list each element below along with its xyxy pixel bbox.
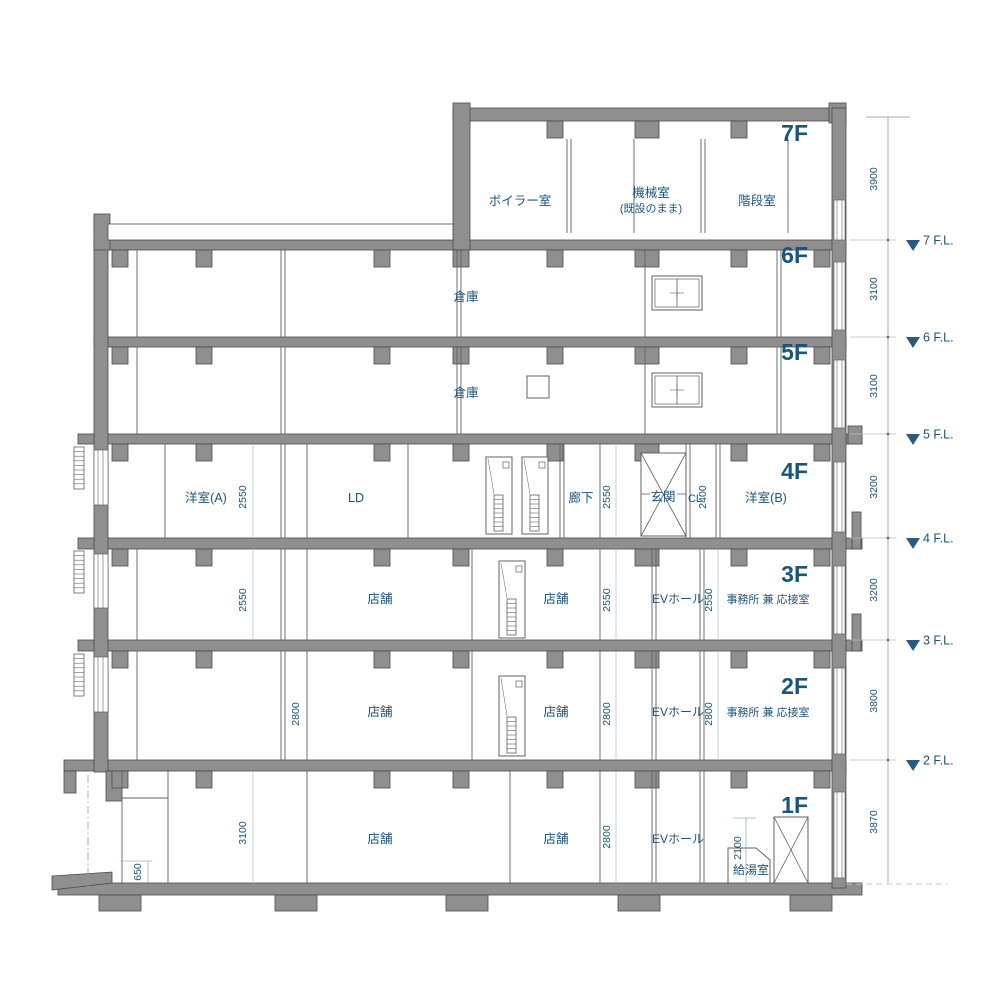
beam-stub [374, 549, 390, 566]
room-label: 機械室 [632, 185, 670, 200]
beam-stub [374, 771, 390, 788]
elevator-door-detail [516, 566, 522, 572]
room-label: 洋室(B) [745, 490, 787, 505]
roof-strip [108, 224, 453, 240]
beam-stub [196, 347, 212, 364]
elevator-door-detail [503, 462, 509, 468]
dim-node [887, 759, 890, 762]
right-dimension-value: 3900 [868, 167, 880, 191]
beam-stub [731, 771, 747, 788]
dim-node [887, 239, 890, 242]
interior-dimension-value: 2800 [703, 702, 715, 726]
interior-dimension-value: 3100 [237, 821, 249, 845]
room-label: 給湯室 [733, 862, 769, 877]
beam-stub [635, 121, 659, 138]
floor-slab [78, 640, 862, 651]
beam-stub [196, 549, 212, 566]
fl-triangle-icon [906, 240, 920, 251]
floor-level-label: 5 F.L. [923, 428, 954, 442]
beam-stub [814, 250, 830, 267]
wall [852, 512, 861, 549]
beam-stub [731, 250, 747, 267]
window-slot [834, 668, 845, 754]
window-slot [834, 360, 845, 428]
railing-hatch [74, 551, 84, 593]
beam-stub [374, 444, 390, 461]
wall [848, 426, 862, 444]
interior-dimension-value: 650 [132, 863, 144, 881]
floor-number-label: 6F [781, 242, 808, 268]
beam-stub [453, 444, 469, 461]
beam-stub [814, 549, 830, 566]
elevator-door-detail [539, 462, 545, 468]
room-label: (既設のまま) [620, 201, 682, 215]
footing [99, 895, 141, 911]
beam-stub [731, 444, 747, 461]
room-label: 事務所 兼 応接室 [726, 592, 809, 606]
room-label: 店舗 [543, 832, 568, 846]
room-label: CL [688, 493, 702, 505]
right-dimension-value: 3870 [868, 810, 880, 834]
room-label: 倉庫 [453, 289, 478, 304]
beam-stub [731, 549, 747, 566]
wall [453, 103, 470, 250]
fl-triangle-icon [906, 538, 920, 549]
beam-stub [635, 250, 659, 267]
floor-level-label: 4 F.L. [923, 532, 954, 546]
floor-level-label: 7 F.L. [923, 234, 954, 248]
beam-stub [453, 549, 469, 566]
beam-stub [547, 347, 563, 364]
floor-number-label: 4F [781, 458, 808, 484]
beam-stub [374, 250, 390, 267]
room-label: 店舗 [543, 705, 568, 719]
window-slot [94, 554, 108, 608]
dim-node [887, 639, 890, 642]
beam-stub [814, 651, 830, 668]
beam-stub [453, 771, 469, 788]
beam-stub [547, 549, 563, 566]
elevator-door-detail [516, 681, 522, 687]
room-label: EVホール [652, 592, 704, 606]
railing-hatch [74, 654, 84, 696]
room-label: 廊下 [568, 490, 593, 505]
building-section-drawing: 7 F.L.6 F.L.5 F.L.4 F.L.3 F.L.2 F.L.3900… [0, 0, 1000, 1000]
beam-stub [731, 347, 747, 364]
floor-slab [64, 760, 846, 771]
room-label: ボイラー室 [489, 193, 552, 208]
interior-dimension-value: 2800 [290, 702, 302, 726]
right-dimension-value: 3200 [868, 475, 880, 499]
floor-level-label: 2 F.L. [923, 754, 954, 768]
floor-number-label: 5F [781, 339, 808, 365]
room-label: 玄関 [650, 489, 675, 504]
room-label: 洋室(A) [185, 490, 227, 505]
concrete-structure [52, 103, 862, 911]
interior-dimension-value: 2100 [732, 836, 744, 860]
dim-node [887, 336, 890, 339]
dim-node [887, 537, 890, 540]
room-label: 階段室 [738, 193, 776, 208]
beam-stub [112, 549, 128, 566]
floor-level-label: 3 F.L. [923, 634, 954, 648]
right-dimension-value: 3100 [868, 277, 880, 301]
beam-stub [547, 771, 563, 788]
beam-stub [453, 651, 469, 668]
beam-stub [196, 651, 212, 668]
window-slot [834, 566, 845, 634]
floor-slab [94, 337, 846, 347]
right-dimension-value: 3800 [868, 689, 880, 713]
beam-stub [112, 444, 128, 461]
beam-stub [112, 250, 128, 267]
room-label: 店舗 [367, 705, 392, 719]
interior-dimension-value: 2550 [237, 485, 249, 509]
beam-stub [112, 771, 128, 788]
window-slot [834, 200, 845, 240]
footing [790, 895, 832, 911]
interior-dimension-value: 2800 [601, 825, 613, 849]
dim-node [887, 433, 890, 436]
beam-stub [112, 347, 128, 364]
floor-slab [78, 538, 862, 549]
small-window [527, 376, 549, 398]
beam-stub [814, 444, 830, 461]
floor-slab [78, 434, 862, 444]
beam-stub [635, 549, 659, 566]
room-label: 店舗 [367, 592, 392, 606]
floor-number-label: 7F [781, 120, 808, 146]
beam-stub [731, 651, 747, 668]
wall [852, 614, 861, 651]
beam-stub [547, 444, 563, 461]
beam-stub [547, 121, 563, 138]
right-dimension-value: 3100 [868, 374, 880, 398]
fl-triangle-icon [906, 640, 920, 651]
window-slot [94, 450, 108, 505]
interior-dimension-value: 2550 [703, 588, 715, 612]
railing-hatch [74, 447, 84, 489]
floor-level-label: 6 F.L. [923, 331, 954, 345]
wall [64, 771, 76, 793]
footing [618, 895, 660, 911]
footing [446, 895, 488, 911]
fl-triangle-icon [906, 760, 920, 771]
beam-stub [112, 651, 128, 668]
beam-stub [547, 651, 563, 668]
beam-stub [196, 771, 212, 788]
room-label: 店舗 [367, 832, 392, 846]
beam-stub [374, 347, 390, 364]
floor-slab [58, 883, 862, 895]
beam-stub [635, 347, 659, 364]
window-slot [834, 262, 845, 330]
window-slot [834, 792, 845, 878]
room-label: 倉庫 [453, 385, 478, 400]
window-slot [834, 462, 845, 532]
beam-stub [814, 347, 830, 364]
floor-number-label: 1F [781, 792, 808, 818]
section-svg: 7 F.L.6 F.L.5 F.L.4 F.L.3 F.L.2 F.L.3900… [0, 0, 1000, 1000]
beam-stub [635, 651, 659, 668]
right-dimension-value: 3200 [868, 578, 880, 602]
floor-number-label: 2F [781, 673, 808, 699]
fl-triangle-icon [906, 337, 920, 348]
beam-stub [374, 651, 390, 668]
beam-stub [635, 771, 659, 788]
room-label: EVホール [652, 832, 704, 846]
room-label: EVホール [652, 705, 704, 719]
floor-number-label: 3F [781, 561, 808, 587]
interior-dimension-value: 2800 [601, 702, 613, 726]
fl-triangle-icon [906, 434, 920, 445]
beam-stub [731, 121, 747, 138]
beam-stub [196, 250, 212, 267]
beam-stub [814, 771, 830, 788]
interior-dimension-value: 2550 [237, 588, 249, 612]
room-label: 事務所 兼 応接室 [726, 705, 809, 719]
interior-dimension-value: 2550 [601, 588, 613, 612]
interior-dimension-value: 2550 [601, 485, 613, 509]
beam-stub [547, 250, 563, 267]
footing [275, 895, 317, 911]
room-label: 店舗 [543, 592, 568, 606]
beam-stub [196, 444, 212, 461]
room-label: LD [348, 491, 364, 505]
window-slot [94, 657, 108, 712]
